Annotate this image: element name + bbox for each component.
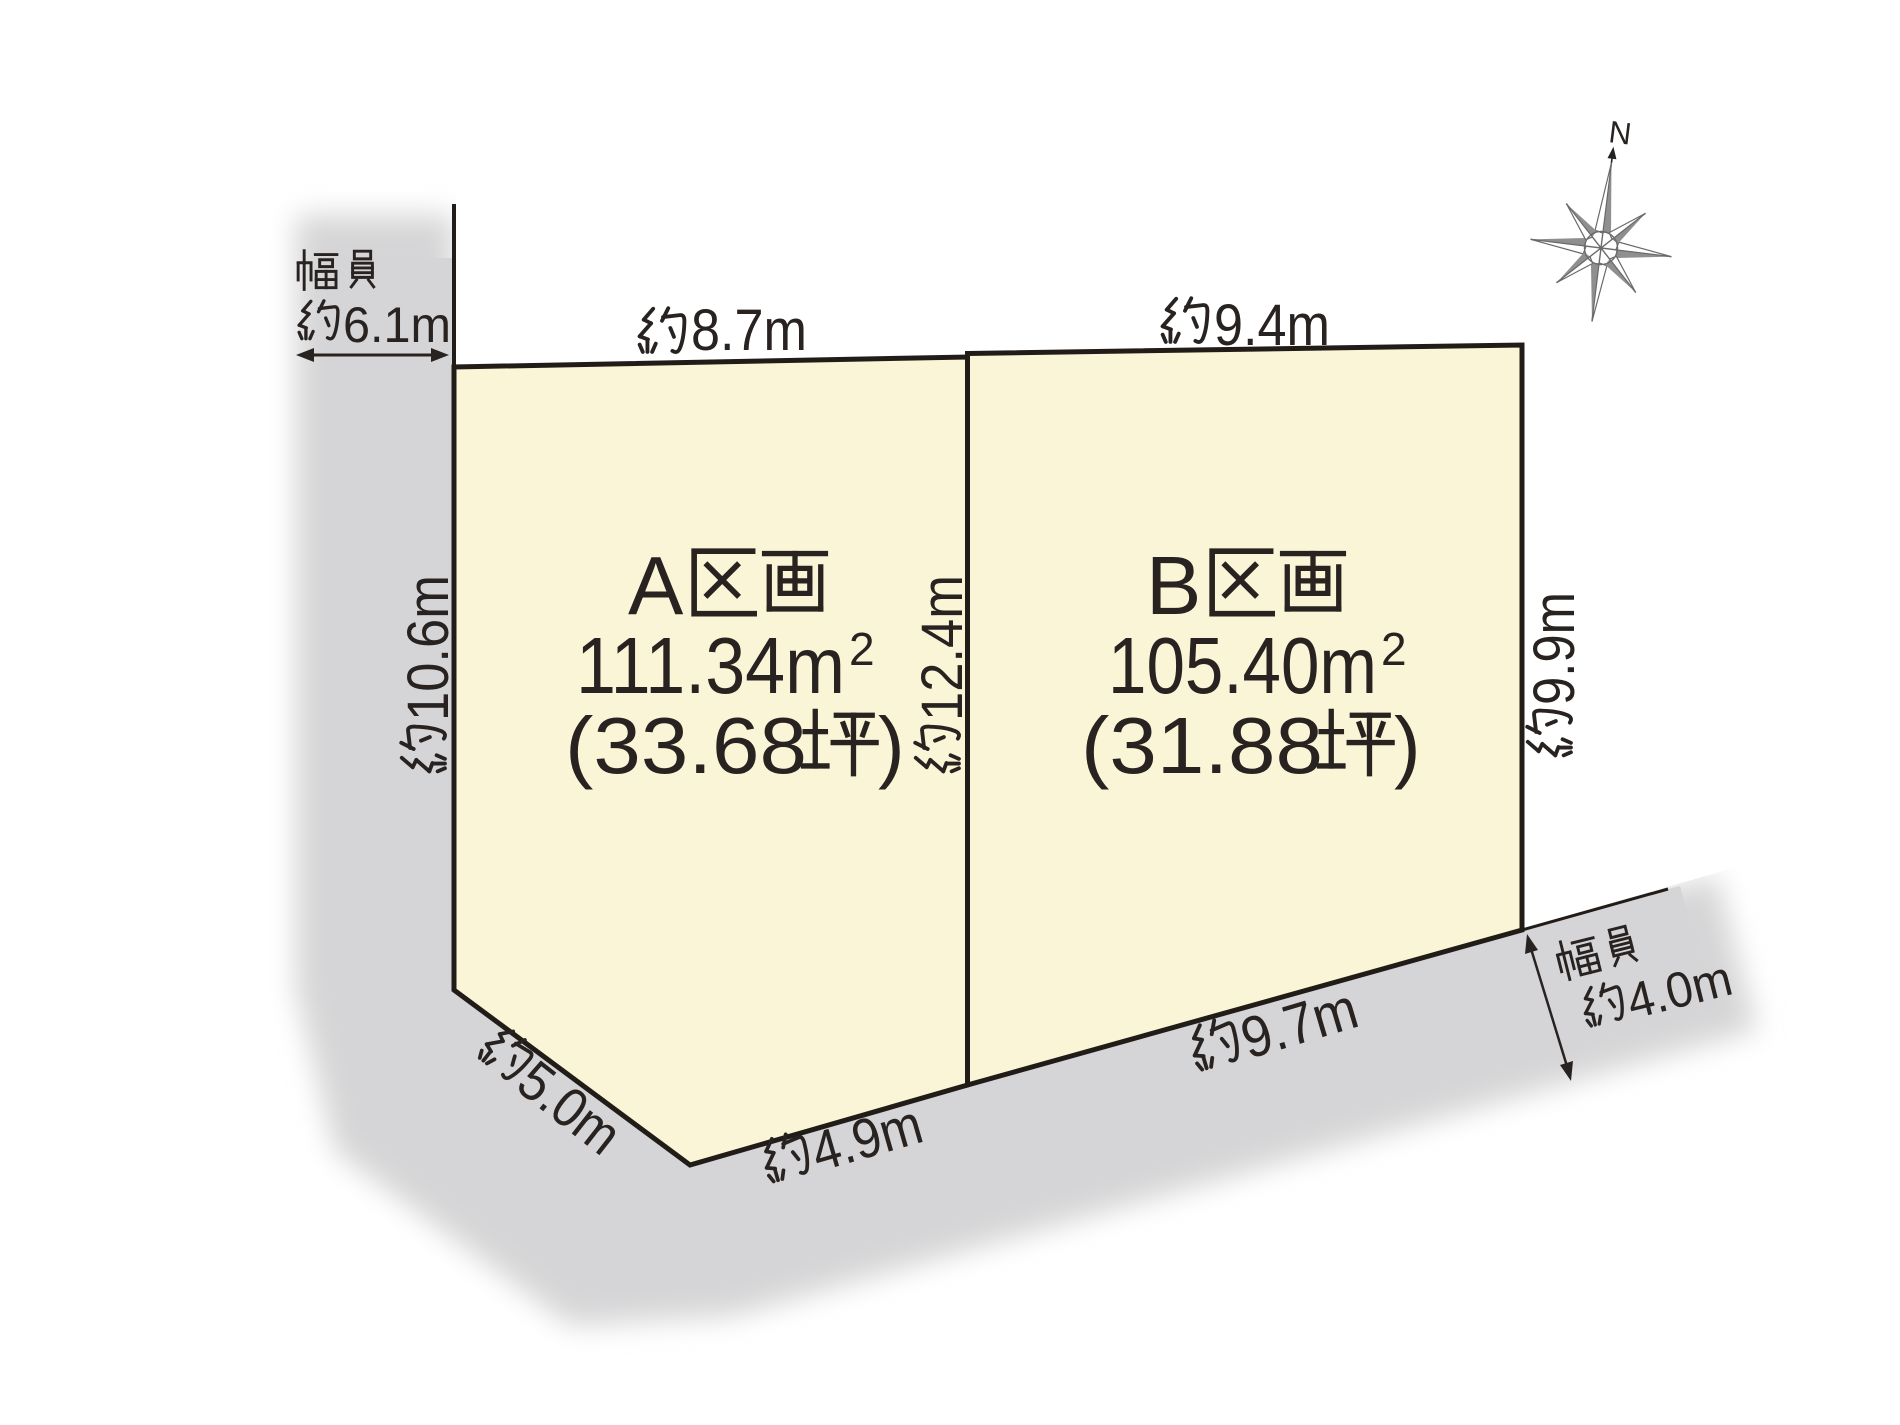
svg-text:A: A [628, 539, 684, 632]
svg-text:12.4m: 12.4m [910, 575, 975, 721]
svg-text:2: 2 [1381, 623, 1407, 675]
svg-text:105.40m: 105.40m [1108, 621, 1377, 710]
svg-text:(31.88: (31.88 [1081, 701, 1323, 790]
svg-text:2: 2 [849, 623, 875, 675]
svg-text:9.4m: 9.4m [1214, 293, 1330, 358]
svg-text:(33.68: (33.68 [565, 701, 807, 790]
svg-text:111.34m: 111.34m [576, 621, 845, 710]
svg-text:B: B [1146, 539, 1201, 632]
svg-text:9.9m: 9.9m [1522, 592, 1587, 705]
svg-text:8.7m: 8.7m [691, 298, 807, 363]
svg-text:10.6m: 10.6m [396, 575, 461, 721]
svg-text:N: N [1607, 114, 1633, 151]
svg-text:): ) [1394, 701, 1421, 790]
svg-text:): ) [878, 701, 905, 790]
svg-text:6.1m: 6.1m [343, 297, 451, 353]
